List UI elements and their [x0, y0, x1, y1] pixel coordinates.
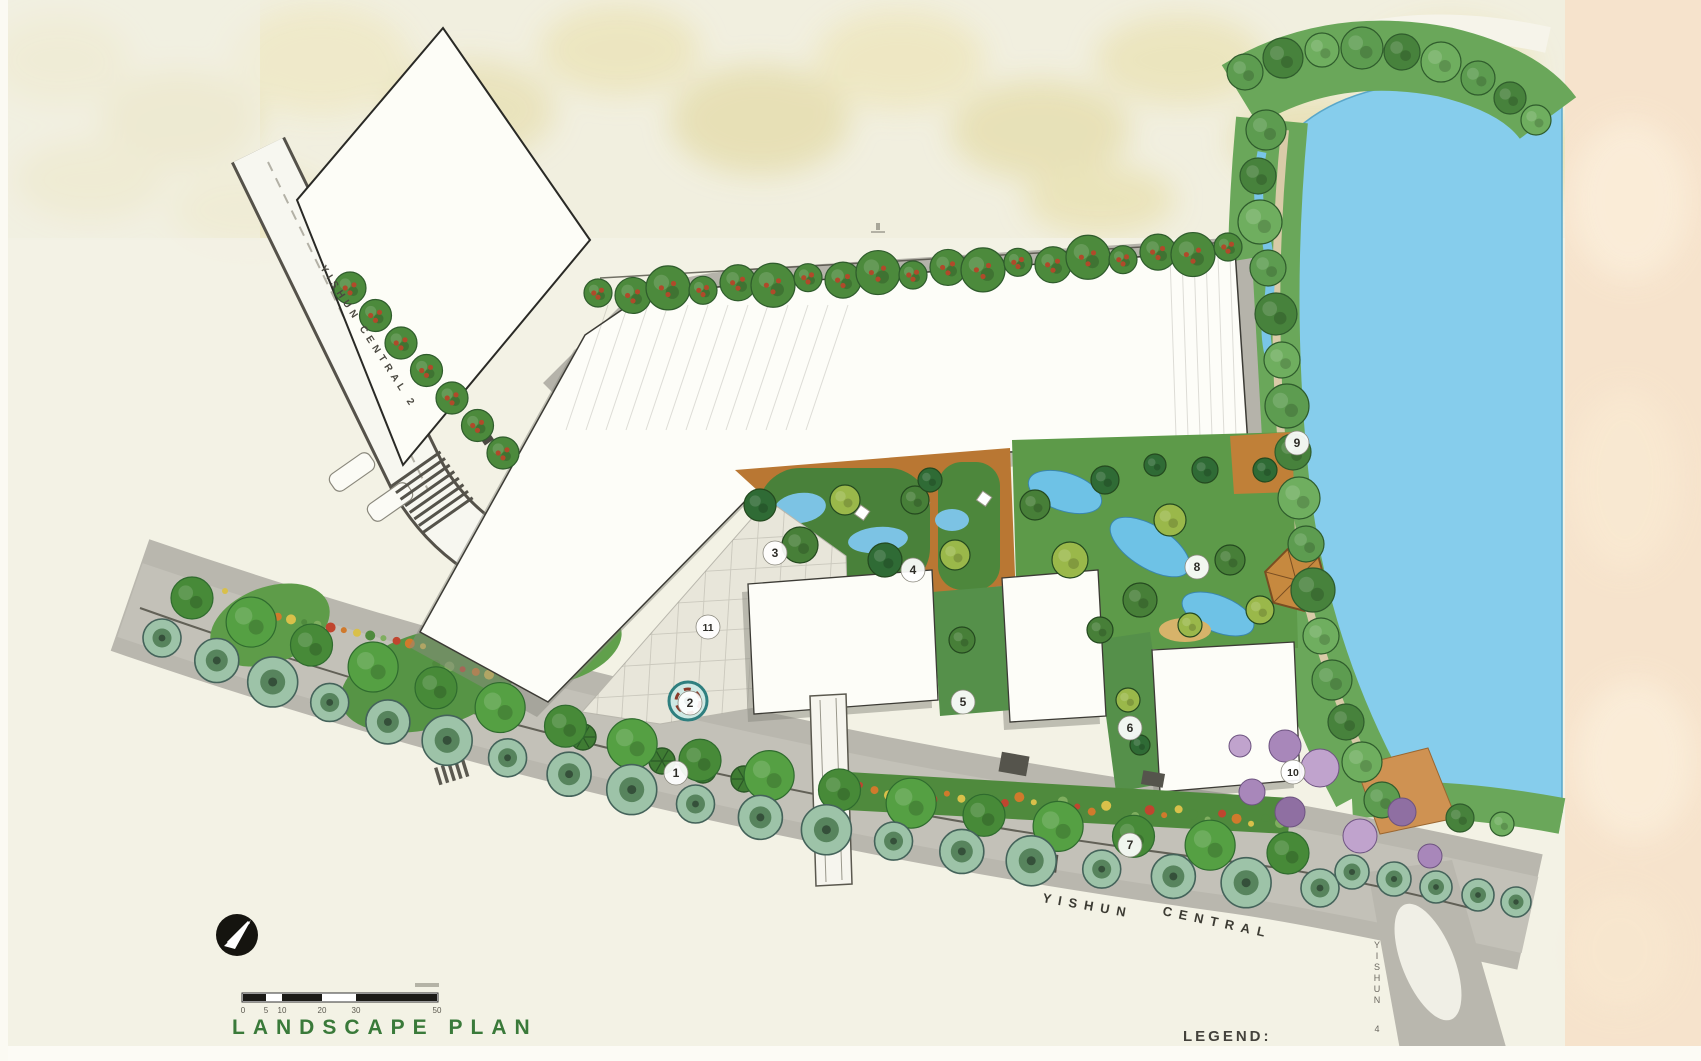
svg-text:5: 5 [960, 695, 967, 709]
plan-marker-4: 4 [901, 558, 925, 582]
svg-text:11: 11 [702, 622, 713, 634]
scale-tick: 5 [264, 1006, 269, 1015]
svg-text:8: 8 [1194, 560, 1201, 574]
left-border [0, 0, 8, 1061]
bottom-border [0, 1046, 1701, 1061]
block-a [748, 570, 938, 714]
block-b [1002, 570, 1106, 722]
plan-marker-5: 5 [951, 690, 975, 714]
plan-marker-3: 3 [763, 541, 787, 565]
plan-marker-10: 10 [1281, 760, 1305, 784]
scale-tick: 0 [241, 1006, 246, 1015]
site-plan-drawing: 0510203050 LANDSCAPE PLAN LEGEND: YISHUN… [0, 0, 1701, 1061]
svg-text:9: 9 [1294, 436, 1301, 450]
landscape-plan-canvas: 0510203050 LANDSCAPE PLAN LEGEND: YISHUN… [0, 0, 1701, 1061]
sheet-corner [0, 0, 260, 240]
plan-marker-11: 11 [696, 615, 720, 639]
block-c [1152, 642, 1300, 792]
scale-tick: 10 [278, 1006, 287, 1015]
compass [216, 914, 258, 956]
svg-text:6: 6 [1127, 721, 1134, 735]
plan-marker-7: 7 [1118, 833, 1142, 857]
scale-tick: 20 [318, 1006, 327, 1015]
svg-text:3: 3 [772, 546, 779, 560]
scale-tick: 30 [352, 1006, 361, 1015]
scale-tick: 50 [433, 1006, 442, 1015]
legend-label: LEGEND: [1183, 1028, 1272, 1045]
svg-text:2: 2 [687, 696, 694, 710]
plan-marker-8: 8 [1185, 555, 1209, 579]
svg-text:7: 7 [1127, 838, 1134, 852]
plan-marker-2: 2 [678, 691, 702, 715]
plan-marker-9: 9 [1285, 431, 1309, 455]
plan-marker-6: 6 [1118, 716, 1142, 740]
page-title: LANDSCAPE PLAN [232, 1016, 538, 1039]
svg-text:1: 1 [673, 766, 680, 780]
svg-text:4: 4 [910, 563, 917, 577]
svg-text:10: 10 [1287, 767, 1299, 779]
plan-marker-1: 1 [664, 761, 688, 785]
